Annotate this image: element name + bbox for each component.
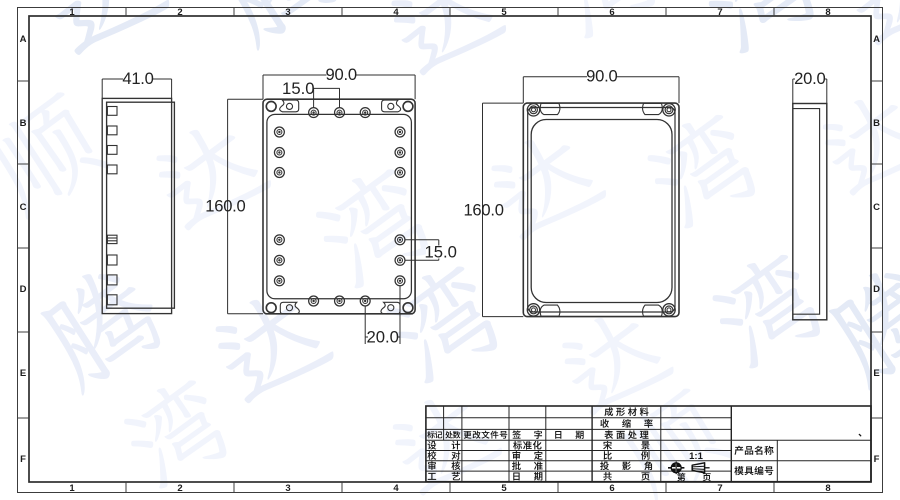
svg-text:4: 4 (393, 7, 399, 18)
svg-text:8: 8 (825, 7, 830, 18)
svg-text:90.0: 90.0 (326, 65, 357, 84)
svg-text:1:1: 1:1 (689, 451, 703, 462)
svg-text:90.0: 90.0 (586, 67, 617, 86)
svg-text:A: A (873, 34, 880, 45)
svg-text:3: 3 (285, 7, 290, 18)
svg-text:15.0: 15.0 (424, 243, 456, 262)
svg-text:7: 7 (717, 7, 722, 18)
svg-text:4: 4 (393, 483, 399, 494)
svg-text:A: A (20, 34, 27, 45)
svg-text:F: F (874, 454, 880, 465)
svg-text:B: B (873, 118, 880, 129)
svg-text:41.0: 41.0 (122, 69, 153, 88)
svg-text:20.0: 20.0 (366, 328, 398, 347)
svg-text:C: C (873, 202, 880, 213)
svg-text:F: F (20, 454, 26, 465)
svg-text:D: D (873, 284, 880, 295)
svg-text:B: B (20, 118, 27, 129)
svg-text:E: E (20, 368, 26, 379)
svg-text:1: 1 (69, 7, 75, 18)
svg-text:C: C (20, 202, 27, 213)
svg-text:15.0: 15.0 (282, 79, 314, 98)
svg-text:8: 8 (825, 483, 830, 494)
svg-text:3: 3 (285, 483, 290, 494)
svg-text:160.0: 160.0 (463, 201, 503, 220)
svg-text:20.0: 20.0 (794, 69, 825, 88)
svg-text:6: 6 (609, 7, 614, 18)
svg-text:1: 1 (69, 483, 75, 494)
svg-text:7: 7 (717, 483, 722, 494)
svg-text:160.0: 160.0 (205, 197, 245, 216)
svg-text:5: 5 (501, 483, 507, 494)
svg-text:D: D (20, 284, 27, 295)
svg-text:5: 5 (501, 7, 507, 18)
svg-text:2: 2 (177, 7, 182, 18)
svg-text:6: 6 (609, 483, 614, 494)
svg-text:E: E (873, 368, 879, 379)
svg-text:2: 2 (177, 483, 182, 494)
